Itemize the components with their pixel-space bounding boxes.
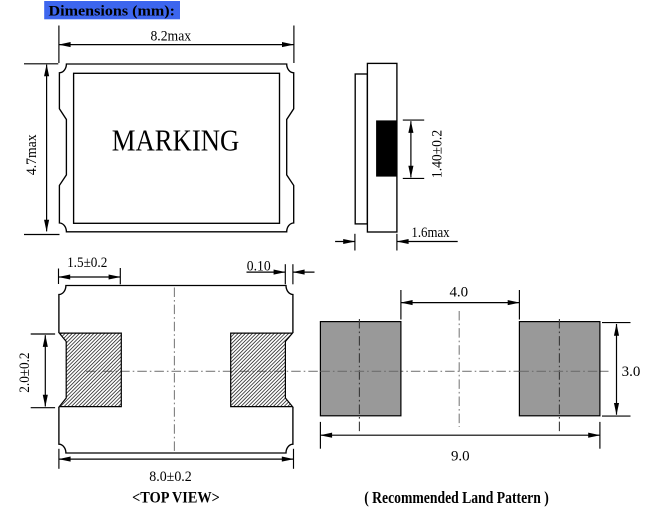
svg-text:8.2max: 8.2max	[150, 28, 191, 44]
svg-text:3.0: 3.0	[622, 364, 641, 380]
svg-text:( Recommended Land Pattern ): ( Recommended Land Pattern )	[364, 488, 549, 507]
svg-text:Dimensions (mm):: Dimensions (mm):	[49, 3, 176, 19]
svg-text:8.0±0.2: 8.0±0.2	[149, 469, 192, 485]
svg-text:4.0: 4.0	[449, 284, 468, 300]
svg-text:9.0: 9.0	[451, 449, 470, 465]
svg-text:4.7max: 4.7max	[24, 134, 40, 175]
svg-text:1.6max: 1.6max	[411, 225, 450, 241]
svg-text:<TOP VIEW>: <TOP VIEW>	[132, 489, 220, 506]
svg-text:1.40±0.2: 1.40±0.2	[430, 130, 446, 178]
svg-text:1.5±0.2: 1.5±0.2	[67, 255, 107, 271]
svg-text:0.10: 0.10	[247, 258, 271, 274]
svg-text:2.0±0.2: 2.0±0.2	[17, 353, 33, 393]
svg-text:MARKING: MARKING	[112, 123, 240, 157]
